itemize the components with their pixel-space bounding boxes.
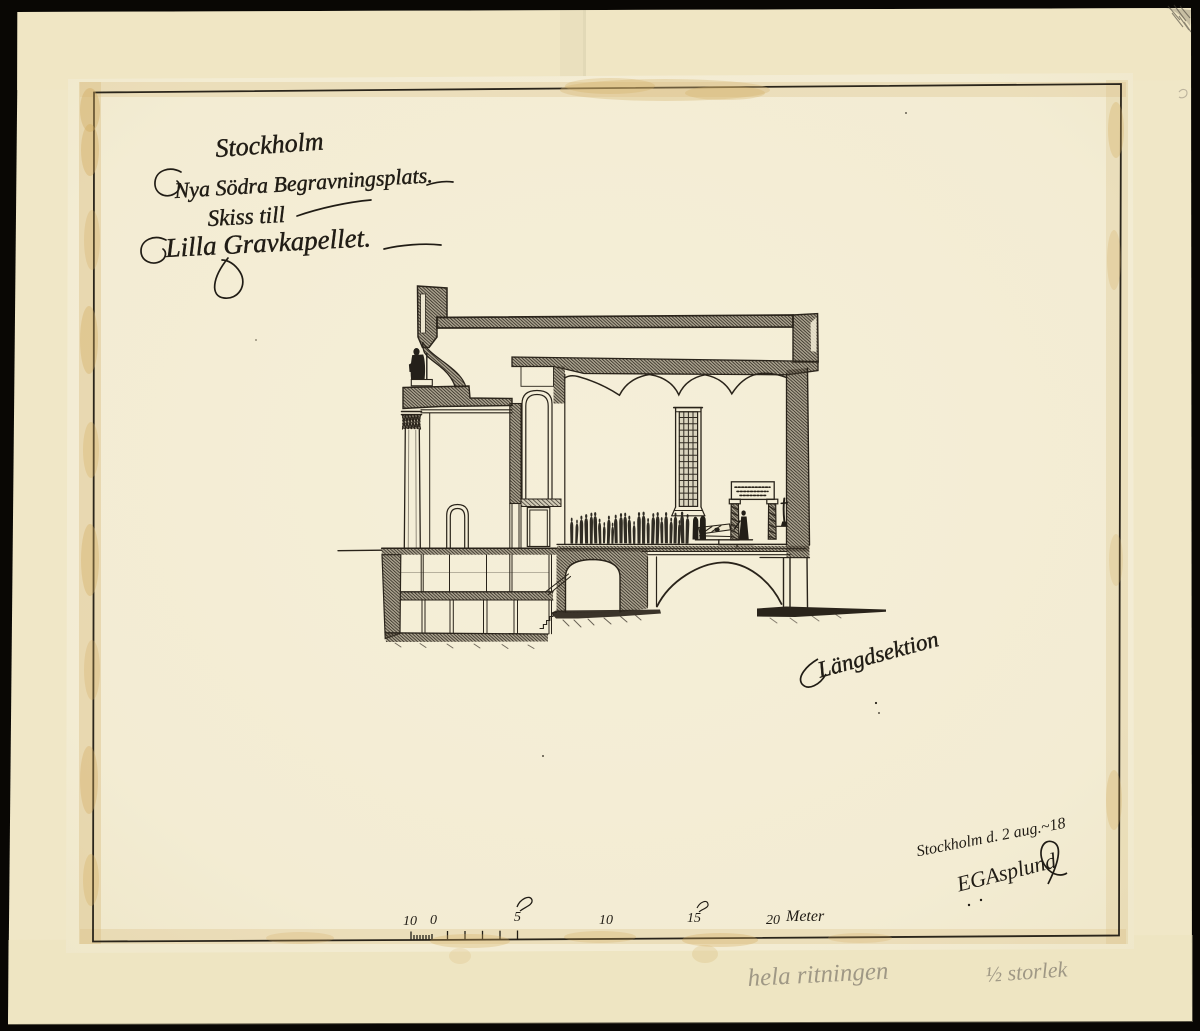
svg-text:5: 5 [514,910,521,925]
svg-text:10: 10 [403,914,417,929]
svg-text:0: 0 [430,913,437,928]
svg-text:Meter: Meter [785,908,825,925]
svg-text:15: 15 [687,911,701,926]
svg-text:10: 10 [599,913,613,928]
svg-text:20: 20 [766,913,780,928]
